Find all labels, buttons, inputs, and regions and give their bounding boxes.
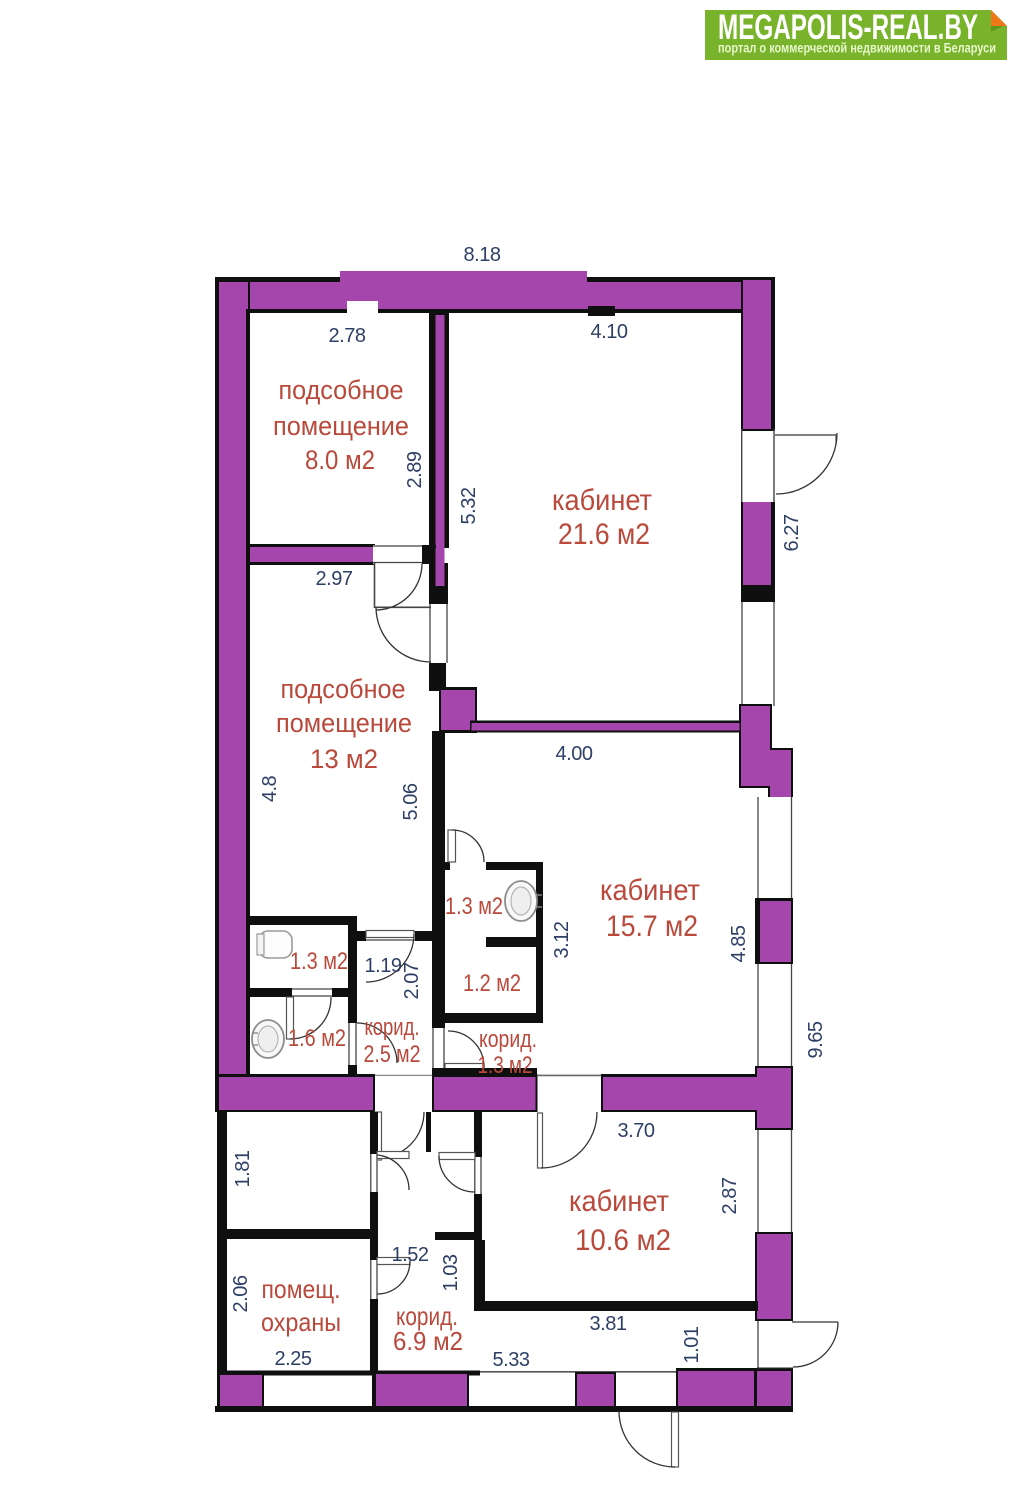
svg-text:кабинет: кабинет	[569, 1185, 669, 1218]
svg-text:1.3 м2: 1.3 м2	[445, 893, 503, 920]
svg-text:1.81: 1.81	[232, 1150, 254, 1187]
svg-text:6.27: 6.27	[781, 514, 803, 551]
svg-text:2.07: 2.07	[401, 962, 423, 999]
svg-text:4.10: 4.10	[591, 321, 628, 343]
svg-text:помещение: помещение	[273, 411, 409, 441]
svg-text:9.65: 9.65	[805, 1021, 827, 1058]
svg-text:1.52: 1.52	[392, 1244, 429, 1266]
svg-text:5.06: 5.06	[400, 783, 422, 820]
svg-text:15.7 м2: 15.7 м2	[606, 910, 698, 943]
svg-text:2.87: 2.87	[719, 1177, 741, 1214]
svg-text:2.5 м2: 2.5 м2	[364, 1041, 421, 1068]
svg-text:1.19: 1.19	[365, 955, 402, 977]
svg-text:2.06: 2.06	[230, 1275, 252, 1312]
svg-text:5.32: 5.32	[458, 487, 480, 524]
svg-text:2.25: 2.25	[275, 1348, 312, 1370]
svg-text:помещ.: помещ.	[262, 1274, 341, 1304]
svg-text:13 м2: 13 м2	[310, 744, 378, 774]
svg-text:6.9 м2: 6.9 м2	[393, 1326, 463, 1356]
svg-text:1.03: 1.03	[440, 1254, 462, 1291]
svg-text:подсобное: подсобное	[281, 674, 406, 704]
svg-text:4.85: 4.85	[728, 925, 750, 962]
svg-text:охраны: охраны	[261, 1307, 341, 1337]
svg-text:портал о коммерческой недвижим: портал о коммерческой недвижимости в Бел…	[718, 41, 996, 56]
svg-text:корид.: корид.	[479, 1026, 537, 1053]
svg-text:21.6 м2: 21.6 м2	[558, 518, 650, 551]
svg-text:2.78: 2.78	[329, 325, 366, 347]
svg-text:1.3 м2: 1.3 м2	[290, 948, 348, 975]
svg-text:3.70: 3.70	[618, 1120, 655, 1142]
svg-text:3.12: 3.12	[551, 921, 573, 958]
svg-text:2.89: 2.89	[404, 451, 426, 488]
svg-text:3.81: 3.81	[590, 1313, 627, 1335]
svg-text:4.8: 4.8	[259, 775, 281, 802]
svg-text:кабинет: кабинет	[600, 874, 700, 907]
svg-text:8.0 м2: 8.0 м2	[305, 445, 375, 475]
svg-text:4.00: 4.00	[556, 743, 593, 765]
svg-text:помещение: помещение	[276, 708, 412, 738]
svg-text:1.01: 1.01	[681, 1326, 703, 1363]
svg-text:1.6 м2: 1.6 м2	[288, 1025, 346, 1052]
svg-text:2.97: 2.97	[316, 568, 353, 590]
svg-text:корид.: корид.	[365, 1014, 420, 1041]
svg-text:подсобное: подсобное	[279, 375, 404, 405]
svg-text:10.6 м2: 10.6 м2	[575, 1224, 671, 1257]
svg-text:5.33: 5.33	[493, 1349, 530, 1371]
svg-text:8.18: 8.18	[464, 244, 501, 266]
svg-text:1.3 м2: 1.3 м2	[478, 1052, 533, 1079]
svg-text:1.2 м2: 1.2 м2	[463, 970, 521, 997]
svg-text:кабинет: кабинет	[552, 484, 652, 517]
